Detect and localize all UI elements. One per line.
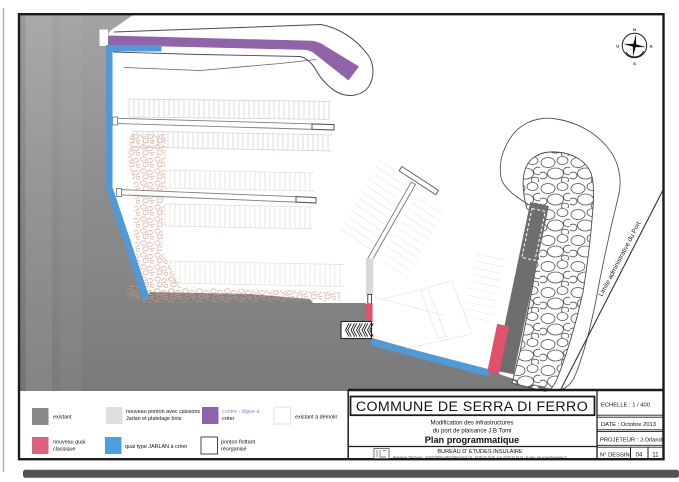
svg-text:quai type JARLAN à créer: quai type JARLAN à créer <box>125 444 188 450</box>
svg-text:classique: classique <box>53 447 75 453</box>
svg-text:du port de plaisance J.B Tomi: du port de plaisance J.B Tomi <box>433 429 512 435</box>
svg-text:contre - digue à: contre - digue à <box>222 409 259 415</box>
svg-text:04: 04 <box>636 453 643 459</box>
svg-text:Résidence "Mezzana" - CASATORR: Résidence "Mezzana" - CASATORRA 20620 BI… <box>393 455 567 459</box>
svg-text:ponton flottant: ponton flottant <box>221 440 256 446</box>
svg-text:U: U <box>616 44 619 49</box>
svg-text:Modification des infrastructur: Modification des infrastructures <box>430 421 513 427</box>
svg-text:PROJETEUR : J.Orlandi: PROJETEUR : J.Orlandi <box>600 438 663 444</box>
svg-text:S: S <box>633 61 636 66</box>
svg-text:E: E <box>650 43 653 48</box>
svg-text:nouveau ponton avec caissons: nouveau ponton avec caissons <box>126 409 200 415</box>
svg-text:Limite administrative du Port: Limite administrative du Port <box>598 221 643 298</box>
svg-text:N° DESSIN: N° DESSIN <box>600 453 630 459</box>
svg-text:11: 11 <box>652 453 659 459</box>
svg-text:existant: existant <box>53 415 72 421</box>
svg-text:Jarlan et platelage bois: Jarlan et platelage bois <box>126 416 182 422</box>
svg-text:réorganisé: réorganisé <box>221 447 246 453</box>
svg-text:existant à démolir: existant à démolir <box>295 415 337 421</box>
svg-text:COMMUNE DE SERRA DI FERRO: COMMUNE DE SERRA DI FERRO <box>356 399 588 415</box>
svg-text:ECHELLE : 1 / 400: ECHELLE : 1 / 400 <box>601 403 650 409</box>
svg-text:créer: créer <box>222 416 234 422</box>
svg-text:Plan programmatique: Plan programmatique <box>425 435 519 445</box>
svg-text:N: N <box>633 27 636 32</box>
svg-text:nouveau quai: nouveau quai <box>53 440 85 446</box>
svg-text:DATE : Octobre 2013: DATE : Octobre 2013 <box>601 422 656 428</box>
